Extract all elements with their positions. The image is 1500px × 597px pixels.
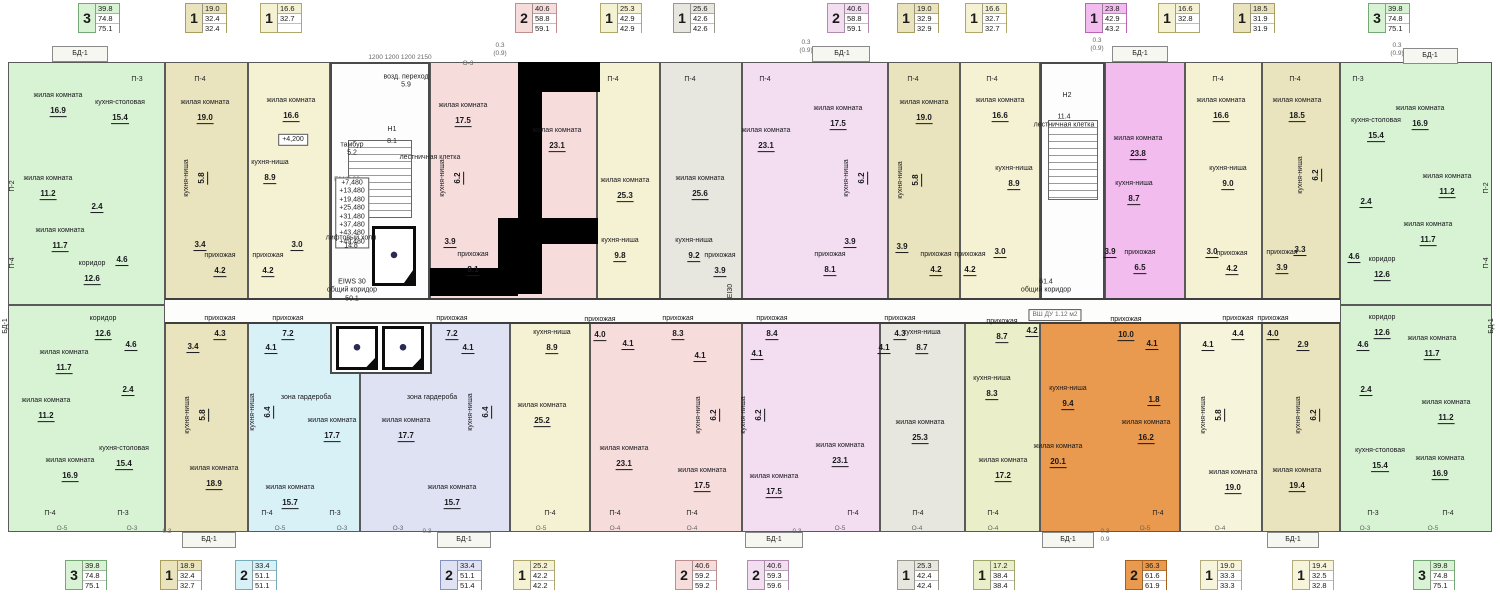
room-area: 19.0: [196, 114, 214, 124]
room-name: жилая комната: [600, 445, 649, 453]
area-values: 33.451.151.1: [253, 561, 276, 589]
area-value: 32.9: [915, 14, 938, 24]
plan-annotation: П-4: [912, 510, 923, 518]
plan-annotation: П-4: [1483, 257, 1491, 268]
room-name: прихожая: [204, 315, 235, 323]
unit-area-badge: 118.932.432.7: [160, 560, 202, 590]
area-value: 16.6: [983, 4, 1006, 14]
area-value: 61.9: [1143, 581, 1166, 590]
room-area: 9.4: [1061, 400, 1074, 410]
plan-annotation: П-4: [686, 510, 697, 518]
plan-annotation: О-5: [835, 525, 846, 533]
room-area: 17.5: [829, 120, 847, 130]
room-name: кухня-ниша: [1295, 396, 1303, 433]
plan-annotation: О-5: [1140, 525, 1151, 533]
room-label: кухня-ниша9.8: [601, 237, 638, 263]
area-value: 59.3: [765, 571, 788, 581]
room-name: жилая комната: [742, 127, 791, 135]
room-label: жилая комната11.7: [1408, 335, 1457, 361]
room-label: прихожая8.3: [662, 315, 693, 341]
area-value: 32.7: [983, 24, 1006, 33]
room-label: 3.9: [443, 231, 456, 249]
room-label: прихожая4.4: [1222, 315, 1253, 341]
room-area: 4.3: [213, 330, 226, 340]
plan-annotation: БД-1: [72, 50, 88, 58]
room-label: кухня-столовая15.4: [1355, 447, 1405, 473]
plan-annotation: О-3: [1360, 525, 1371, 533]
room-area: 3.4: [186, 343, 199, 353]
room-label: 4.1: [461, 337, 474, 355]
room-label: 4.6: [115, 249, 128, 267]
room-name: кухня-ниша: [1297, 156, 1305, 193]
room-name: зона гардероба: [407, 394, 457, 402]
room-area: 19.4: [1288, 482, 1306, 492]
room-name: кухня-ниша: [601, 237, 638, 245]
room-area: 12.6: [94, 330, 112, 340]
area-value: 40.6: [845, 4, 868, 14]
room-name: жилая комната: [1273, 97, 1322, 105]
room-area: 3.9: [713, 267, 726, 277]
plan-annotation: БД-1: [766, 536, 782, 544]
floorplan-page: жилая комната16.9кухня-столовая15.4жилая…: [0, 0, 1500, 597]
room-label: прихожая3.9: [1266, 249, 1297, 275]
unit-area-badge: 236.361.661.9: [1125, 560, 1167, 590]
room-label: 2.4: [1359, 191, 1372, 209]
room-label: жилая комната11.7: [1404, 221, 1453, 247]
room-area: 3.0: [993, 248, 1006, 258]
area-value: 58.8: [845, 14, 868, 24]
plan-annotation: П-2: [9, 180, 17, 191]
room-name: жилая комната: [1416, 455, 1465, 463]
room-name: кухня-ниша: [467, 393, 475, 430]
room-name: жилая комната: [267, 97, 316, 105]
room-area: 6.2: [710, 408, 720, 421]
room-label: 3.0: [290, 234, 303, 252]
room-label: жилая комната23.8: [1114, 135, 1163, 161]
room-label: жилая комната11.2: [1423, 173, 1472, 199]
room-area: 23.1: [548, 142, 566, 152]
area-values: 39.874.875.1: [96, 4, 119, 32]
room-area: 4.1: [877, 344, 890, 354]
plan-annotation: П-4: [261, 510, 272, 518]
room-label: прихожая10.0: [1110, 316, 1141, 342]
plan-annotation: П-4: [607, 76, 618, 84]
plan-annotation: П-3: [1367, 510, 1378, 518]
room-label: прихожая8.1: [814, 251, 845, 277]
area-values: 39.874.875.1: [1386, 4, 1409, 32]
plan-annotation: О-4: [610, 525, 621, 533]
room-count: 2: [828, 4, 845, 32]
room-count: 1: [898, 4, 915, 32]
room-label: 4.1: [693, 345, 706, 363]
room-area: 6.4: [264, 405, 274, 418]
room-label: 2.4: [121, 379, 134, 397]
room-label: прихожая4.0: [1257, 315, 1288, 341]
room-label: жилая комната23.1: [816, 442, 865, 468]
room-area: 16.9: [61, 472, 79, 482]
plan-annotation: О-5: [57, 525, 68, 533]
room-name: прихожая: [954, 251, 985, 259]
area-value: 32.4: [178, 571, 201, 581]
room-area: 4.2: [1025, 327, 1038, 337]
room-name: прихожая: [252, 252, 283, 260]
room-area: 16.9: [1431, 470, 1449, 480]
room-name: жилая комната: [24, 175, 73, 183]
plan-annotation: О-3: [127, 525, 138, 533]
room-area: 12.6: [83, 275, 101, 285]
room-label: прихожая6.5: [1124, 249, 1155, 275]
area-value: 42.9: [618, 14, 641, 24]
room-name: жилая комната: [190, 465, 239, 473]
area-values: 25.242.242.2: [531, 561, 554, 589]
plan-annotation: БД-1: [2, 318, 10, 334]
area-value: 42.9: [618, 24, 641, 33]
room-label: кухня-столовая15.4: [1351, 117, 1401, 143]
room-name: кухня-столовая: [1351, 117, 1401, 125]
room-label: жилая комната11.7: [40, 349, 89, 375]
room-area: 16.6: [1212, 112, 1230, 122]
room-label: 3.9: [895, 236, 908, 254]
area-value: 32.8: [1176, 14, 1199, 24]
room-area: 8.3: [985, 390, 998, 400]
area-value: 40.6: [765, 561, 788, 571]
plan-annotation: БД-1: [1132, 50, 1148, 58]
room-label: кухня-ниша6.4: [467, 393, 493, 430]
room-name: жилая комната: [979, 457, 1028, 465]
room-area: 5.8: [198, 171, 208, 184]
area-values: 25.642.642.6: [691, 4, 714, 32]
room-area: 3.9: [443, 238, 456, 248]
area-values: 18.932.432.7: [178, 561, 201, 589]
area-value: 75.1: [83, 581, 106, 590]
plan-annotation: лифтовый холл 14.8: [326, 235, 377, 252]
room-label: кухня-ниша5.8: [1200, 396, 1226, 433]
room-label: 3.0: [993, 241, 1006, 259]
room-label: прихожая8.4: [756, 315, 787, 341]
area-value: [1176, 24, 1199, 32]
area-value: 31.9: [1251, 14, 1274, 24]
room-label: 3.9: [843, 231, 856, 249]
room-count: 1: [186, 4, 203, 32]
room-label: 4.6: [1347, 246, 1360, 264]
plan-annotation: П-3: [329, 510, 340, 518]
room-area: 17.5: [765, 488, 783, 498]
room-count: 2: [1126, 561, 1143, 589]
room-name: жилая комната: [1408, 335, 1457, 343]
room-area: 3.0: [290, 241, 303, 251]
room-name: кухня-столовая: [99, 445, 149, 453]
room-count: 2: [516, 4, 533, 32]
plan-annotation: 0.3 0.9: [1100, 528, 1109, 544]
unit-area-badge: 119.033.333.3: [1200, 560, 1242, 590]
unit-area-badge: 116.632.7: [260, 3, 302, 33]
plan-annotation: 0.3: [162, 528, 171, 536]
room-count: 1: [514, 561, 531, 589]
room-area: 25.3: [616, 192, 634, 202]
room-area: 6.2: [1310, 408, 1320, 421]
room-area: 16.6: [282, 112, 300, 122]
area-values: 36.361.661.9: [1143, 561, 1166, 589]
room-label: жилая комната11.2: [22, 397, 71, 423]
room-area: 4.2: [1225, 265, 1238, 275]
room-name: кухня-ниша: [897, 161, 905, 198]
area-value: 42.6: [691, 24, 714, 33]
room-label: 3.9: [1103, 241, 1116, 259]
room-label: кухня-ниша6.4: [249, 393, 275, 430]
room-name: кухня-ниша: [973, 375, 1010, 383]
plan-annotation: БД-1: [834, 50, 850, 58]
plan-annotation: БД-1: [1060, 536, 1076, 544]
room-area: 1.8: [1147, 396, 1160, 406]
area-values: 40.659.359.6: [765, 561, 788, 589]
area-value: 18.9: [178, 561, 201, 571]
room-name: жилая комната: [518, 402, 567, 410]
room-count: 2: [748, 561, 765, 589]
plan-annotation: БД-1: [456, 536, 472, 544]
room-count: 1: [898, 561, 915, 589]
room-label: кухня-ниша5.8: [897, 161, 923, 198]
plan-annotation: П-4: [1152, 510, 1163, 518]
room-name: кухня-ниша: [249, 393, 257, 430]
plan-annotation: О-5: [536, 525, 547, 533]
room-name: кухня-ниша: [740, 396, 748, 433]
room-label: кухня-ниша8.9: [251, 159, 288, 185]
room-count: 3: [1414, 561, 1431, 589]
staircase-h2: [1048, 120, 1098, 200]
area-value: 42.6: [691, 14, 714, 24]
room-name: жилая комната: [896, 419, 945, 427]
room-label: кухня-столовая15.4: [99, 445, 149, 471]
room-count: 1: [966, 4, 983, 32]
room-name: прихожая: [457, 251, 488, 259]
room-name: прихожая: [1124, 249, 1155, 257]
area-value: 33.4: [458, 561, 481, 571]
plan-annotation: лестничная клетка: [400, 154, 461, 162]
room-area: 4.0: [1266, 330, 1279, 340]
room-name: жилая комната: [34, 92, 83, 100]
room-name: жилая комната: [750, 473, 799, 481]
unit-area-badge: 233.451.151.1: [235, 560, 277, 590]
area-value: 42.4: [915, 571, 938, 581]
room-label: кухня-ниша6.2: [439, 159, 465, 196]
area-value: 19.0: [1218, 561, 1241, 571]
unit-area-badge: 339.874.875.1: [1413, 560, 1455, 590]
room-area: 16.9: [1411, 120, 1429, 130]
room-label: 4.1: [1145, 333, 1158, 351]
area-values: 25.342.442.4: [915, 561, 938, 589]
area-value: 19.4: [1310, 561, 1333, 571]
room-name: жилая комната: [678, 467, 727, 475]
room-name: жилая комната: [601, 177, 650, 185]
room-area: 25.3: [911, 434, 929, 444]
room-label: кухня-столовая15.4: [95, 99, 145, 125]
room-name: кухня-ниша: [1209, 165, 1246, 173]
room-area: 20.1: [1049, 458, 1067, 468]
room-label: кухня-ниша8.7: [903, 329, 940, 355]
area-value: 16.6: [1176, 4, 1199, 14]
unit-area-badge: 339.874.875.1: [78, 3, 120, 33]
area-value: 51.1: [253, 571, 276, 581]
room-area: 23.8: [1129, 150, 1147, 160]
area-value: 59.6: [765, 581, 788, 590]
unit-area-badge: 125.342.942.9: [600, 3, 642, 33]
room-name: прихожая: [986, 318, 1017, 326]
plan-annotation: П-3: [131, 76, 142, 84]
room-name: жилая комната: [533, 127, 582, 135]
room-label: зона гардероба: [407, 394, 457, 402]
room-name: жилая комната: [976, 97, 1025, 105]
room-label: кухня-ниша8.9: [533, 329, 570, 355]
room-label: жилая комната17.5: [750, 473, 799, 499]
area-values: 23.842.943.2: [1103, 4, 1126, 32]
area-value: 42.2: [531, 571, 554, 581]
room-area: 25.2: [533, 417, 551, 427]
room-name: кухня-ниша: [533, 329, 570, 337]
area-value: 40.6: [693, 561, 716, 571]
room-name: жилая комната: [1396, 105, 1445, 113]
room-name: жилая комната: [1197, 97, 1246, 105]
room-label: жилая комната16.2: [1122, 419, 1171, 445]
plan-annotation: О-4: [988, 525, 999, 533]
area-value: 39.8: [96, 4, 119, 14]
room-count: 1: [1086, 4, 1103, 32]
room-name: прихожая: [704, 252, 735, 260]
room-name: прихожая: [584, 316, 615, 324]
room-area: 10.0: [1117, 331, 1135, 341]
room-name: кухня-ниша: [184, 396, 192, 433]
room-area: 17.7: [397, 432, 415, 442]
plan-annotation: 61.4 общий коридор: [1021, 279, 1071, 296]
room-area: 8.7: [995, 333, 1008, 343]
room-count: 3: [1369, 4, 1386, 32]
room-label: прихожая4.0: [584, 316, 615, 342]
room-name: жилая комната: [181, 99, 230, 107]
area-value: 18.5: [1251, 4, 1274, 14]
area-values: 25.342.942.9: [618, 4, 641, 32]
room-area: 17.2: [994, 472, 1012, 482]
room-area: 15.7: [443, 499, 461, 509]
room-label: жилая комната23.1: [600, 445, 649, 471]
area-value: 17.2: [991, 561, 1014, 571]
room-area: 2.4: [90, 203, 103, 213]
room-label: жилая комната17.5: [814, 105, 863, 131]
room-area: 4.1: [750, 350, 763, 360]
plan-annotation: возд. переход 5.9: [383, 74, 428, 91]
room-area: 17.5: [693, 482, 711, 492]
room-area: 11.2: [37, 412, 54, 422]
plan-annotation: П-4: [684, 76, 695, 84]
room-label: прихожая3.9: [704, 252, 735, 278]
room-area: 18.5: [1288, 112, 1306, 122]
area-values: 19.033.333.3: [1218, 561, 1241, 589]
room-label: 4.6: [1356, 334, 1369, 352]
room-label: кухня-ниша9.0: [1209, 165, 1246, 191]
room-label: коридор12.6: [1369, 314, 1396, 340]
room-label: жилая комната23.1: [742, 127, 791, 153]
room-name: прихожая: [1222, 315, 1253, 323]
room-label: кухня-ниша5.8: [184, 396, 210, 433]
room-label: 4.6: [124, 334, 137, 352]
area-values: 40.659.259.2: [693, 561, 716, 589]
room-label: жилая комната15.7: [428, 484, 477, 510]
room-area: 15.4: [115, 460, 133, 470]
room-label: 4.1: [264, 337, 277, 355]
area-value: 59.2: [693, 571, 716, 581]
room-name: жилая комната: [1423, 173, 1472, 181]
room-area: 9.2: [687, 252, 700, 262]
room-label: кухня-ниша9.4: [1049, 385, 1086, 411]
room-area: 16.6: [991, 112, 1009, 122]
area-value: 74.8: [96, 14, 119, 24]
room-label: прихожая4.2: [204, 252, 235, 278]
room-name: прихожая: [756, 315, 787, 323]
room-label: жилая комната18.5: [1273, 97, 1322, 123]
area-value: 32.9: [915, 24, 938, 33]
room-label: прихожая8.7: [986, 318, 1017, 344]
room-name: прихожая: [1216, 250, 1247, 258]
room-name: кухня-ниша: [695, 396, 703, 433]
room-area: 8.1: [823, 266, 836, 276]
unit-area-badge: 118.531.931.9: [1233, 3, 1275, 33]
room-area: 8.4: [765, 330, 778, 340]
room-name: жилая комната: [439, 102, 488, 110]
room-label: жилая комната16.6: [976, 97, 1025, 123]
room-label: кухня-ниша8.3: [973, 375, 1010, 401]
room-name: прихожая: [884, 315, 915, 323]
room-label: кухня-ниша6.2: [740, 396, 766, 433]
room-label: жилая комната19.0: [1209, 469, 1258, 495]
room-label: 4.1: [621, 333, 634, 351]
area-values: 19.032.432.4: [203, 4, 226, 32]
area-value: 32.8: [1310, 581, 1333, 590]
plan-annotation: П-4: [907, 76, 918, 84]
area-value: [278, 24, 301, 32]
room-label: жилая комната16.9: [46, 457, 95, 483]
area-value: 25.3: [618, 4, 641, 14]
plan-annotation: П-3: [1352, 76, 1363, 84]
room-label: жилая комната19.0: [900, 99, 949, 125]
room-name: жилая комната: [1122, 419, 1171, 427]
room-area: 6.4: [482, 405, 492, 418]
room-label: жилая комната16.9: [1416, 455, 1465, 481]
plan-annotation: ВШ ДУ 1.12 м2: [1028, 309, 1081, 321]
room-label: коридор12.6: [1369, 256, 1396, 282]
room-label: кухня-ниша6.2: [695, 396, 721, 433]
room-name: зона гардероба: [281, 394, 331, 402]
room-label: зона гардероба: [281, 394, 331, 402]
area-values: 40.658.859.1: [533, 4, 556, 32]
unit-area-badge: 125.642.642.6: [673, 3, 715, 33]
room-area: 4.6: [115, 256, 128, 266]
room-label: жилая комната16.6: [267, 97, 316, 123]
room-area: 4.2: [963, 266, 976, 276]
room-area: 3.9: [1103, 248, 1116, 258]
room-area: 5.8: [912, 173, 922, 186]
room-area: 3.4: [193, 241, 206, 251]
plan-annotation: П-4: [1212, 76, 1223, 84]
room-name: жилая комната: [814, 105, 863, 113]
plan-annotation: П-4: [1442, 510, 1453, 518]
plan-annotation: П-4: [544, 510, 555, 518]
area-value: 58.8: [533, 14, 556, 24]
plan-annotation: П-4: [759, 76, 770, 84]
plan-annotation: 11.4 лестничная клетка: [1034, 114, 1095, 131]
room-name: жилая комната: [676, 175, 725, 183]
room-area: 4.4: [1231, 330, 1244, 340]
room-count: 1: [261, 4, 278, 32]
room-area: 9.0: [1221, 180, 1234, 190]
room-count: 2: [236, 561, 253, 589]
